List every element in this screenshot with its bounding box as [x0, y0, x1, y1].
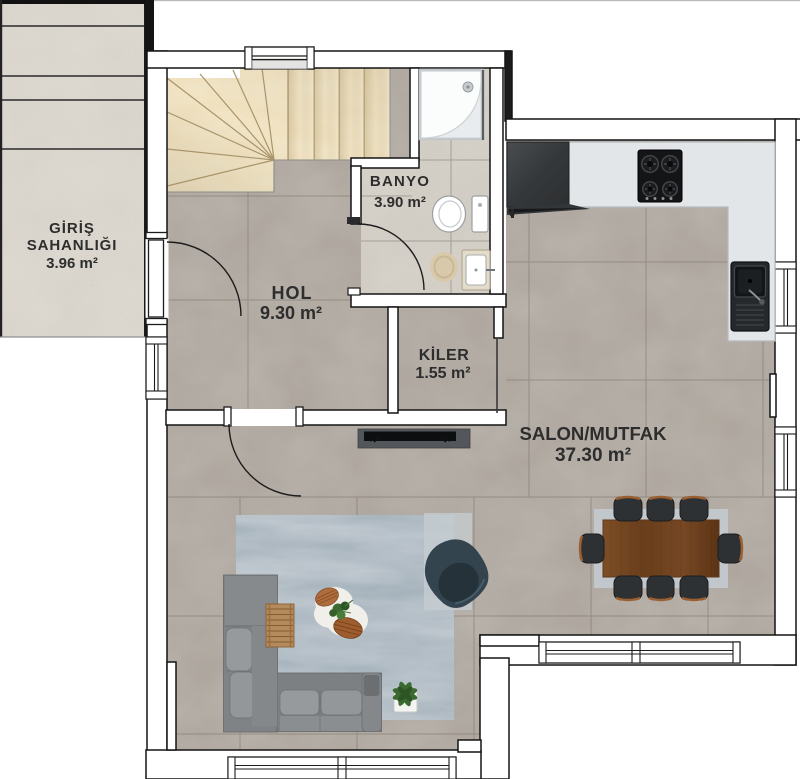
svg-text:HOL: HOL	[272, 283, 313, 303]
svg-text:1.55 m²: 1.55 m²	[415, 365, 470, 382]
svg-text:3.96 m²: 3.96 m²	[46, 255, 98, 272]
svg-text:KİLER: KİLER	[419, 346, 470, 364]
svg-text:SAHANLIĞI: SAHANLIĞI	[27, 236, 118, 254]
svg-text:GİRİŞ: GİRİŞ	[49, 220, 95, 237]
svg-text:37.30 m²: 37.30 m²	[555, 445, 631, 466]
svg-text:SALON/MUTFAK: SALON/MUTFAK	[520, 423, 668, 444]
svg-text:9.30 m²: 9.30 m²	[260, 303, 322, 323]
svg-text:3.90 m²: 3.90 m²	[374, 194, 426, 211]
svg-text:BANYO: BANYO	[370, 173, 430, 190]
